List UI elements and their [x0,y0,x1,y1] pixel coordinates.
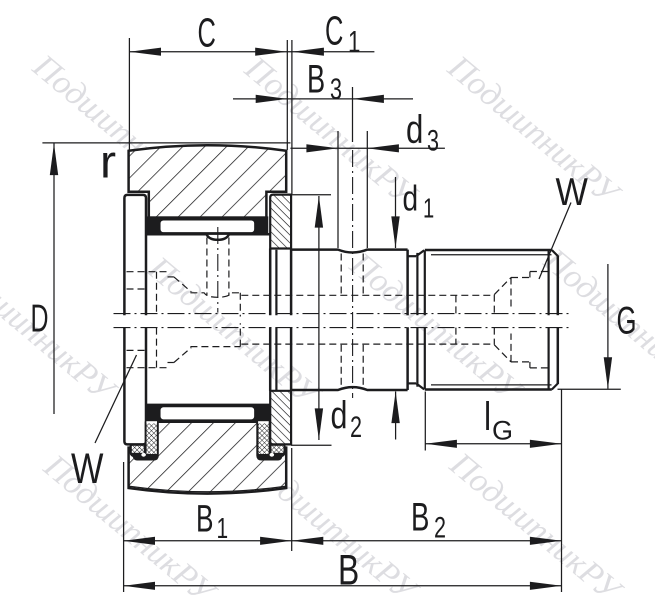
svg-text:1: 1 [217,513,229,545]
svg-text:r: r [100,136,116,188]
svg-text:B: B [307,57,325,101]
svg-text:d: d [406,107,423,152]
svg-text:B: B [338,547,359,595]
svg-text:2: 2 [350,409,362,443]
svg-text:B: B [196,497,213,540]
svg-text:W: W [71,445,104,492]
svg-text:3: 3 [330,71,342,105]
svg-text:C: C [325,8,343,54]
svg-text:l: l [484,394,491,439]
svg-text:G: G [492,416,513,446]
svg-text:B: B [411,496,429,540]
svg-text:G: G [617,299,637,343]
svg-text:3: 3 [427,123,439,157]
svg-text:1: 1 [423,193,434,224]
svg-text:1: 1 [348,24,360,58]
svg-text:2: 2 [434,510,446,544]
svg-text:d: d [403,178,419,218]
svg-text:d: d [331,394,348,437]
svg-text:D: D [31,296,49,340]
svg-text:C: C [198,10,216,56]
svg-text:W: W [556,170,589,214]
